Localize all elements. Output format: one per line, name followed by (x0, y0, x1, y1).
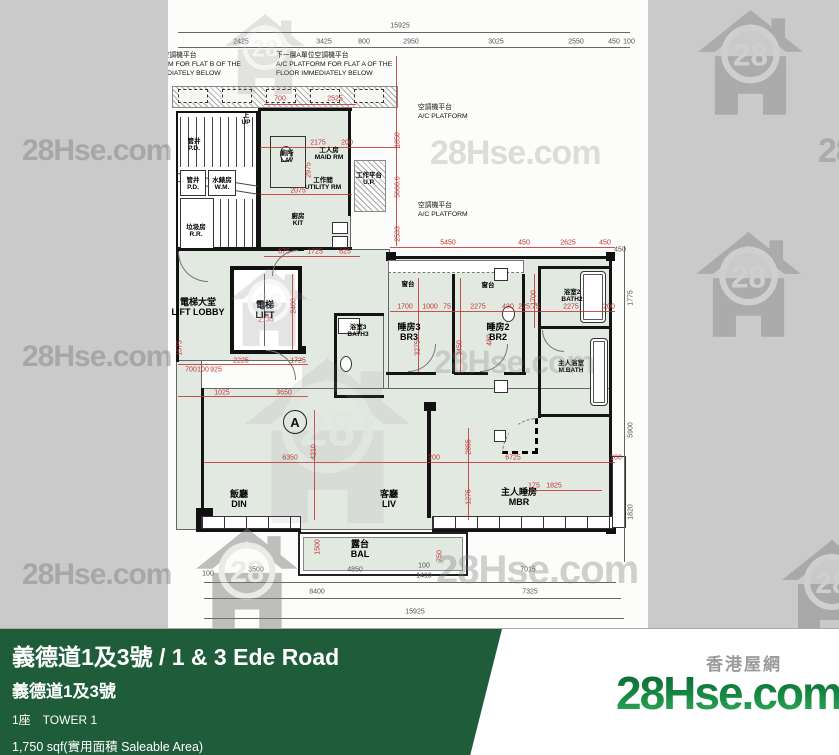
dimension-label: 1700 (531, 290, 538, 306)
ac-unit (222, 89, 252, 103)
wall (348, 108, 351, 216)
room-label-zh: 工作間 (305, 177, 341, 184)
dimension-label: 1775 (628, 290, 635, 306)
living-block-floor (202, 388, 612, 530)
column (298, 346, 306, 354)
dimension-label: 2625 (560, 240, 576, 247)
dimension-label: 1410 (416, 573, 432, 580)
dimension-line (204, 618, 624, 619)
room-label: 主人睡房MBR (501, 487, 537, 507)
dimension-label: 450 (614, 247, 626, 254)
room-label: 客廳LIV (380, 489, 398, 509)
dimension-label: 3450 (457, 340, 464, 356)
room-label: 浴室3BATH3 (347, 324, 368, 339)
dimension-line (204, 598, 621, 599)
room-label-zh: 客廳 (380, 489, 398, 499)
dimension-label: 100 (202, 571, 214, 578)
room-label: 主人浴室M.BATH (558, 360, 584, 375)
dimension-label: 15925 (390, 23, 409, 30)
dimension-label: 430 (502, 304, 514, 311)
dimension-line (390, 247, 615, 248)
dimension-label: 5666.6 (395, 176, 402, 197)
dimension-label: 1850 (395, 132, 402, 148)
room-label-zh: 廁所 (281, 150, 294, 157)
dimension-line (204, 582, 616, 583)
wall (334, 395, 384, 398)
dimension-label: 2225 (233, 358, 249, 365)
room-label: 水錶房W.M. (212, 177, 232, 192)
room-label-en: BATH2 (561, 296, 582, 303)
room-label: 管井P.D. (188, 138, 201, 153)
dimension-label: 1275 (466, 489, 473, 505)
dimension-label: 5900 (628, 422, 635, 438)
dimension-label: 7015 (520, 567, 536, 574)
room-label-zh: 上 (241, 112, 250, 119)
dimension-label: 2855 (466, 439, 473, 455)
annotation-line: 空調機平台 (418, 104, 468, 113)
dimension-line (178, 32, 630, 33)
dimension-label: 925 (210, 367, 222, 374)
room-label-zh: 工作平台 (356, 172, 382, 179)
property-subtitle: 義德道1及3號 (12, 677, 512, 702)
room-label-en: KIT (292, 220, 305, 227)
room-label-en: BR2 (486, 332, 509, 342)
dimension-label: 1725 (290, 358, 306, 365)
room-label-zh: 垃圾房 (186, 224, 206, 231)
dimension-label: 8400 (309, 589, 325, 596)
column (424, 402, 436, 411)
ac-unit (178, 89, 208, 103)
annotation-line: FLOOR IMMEDIATELY BELOW (276, 70, 392, 79)
watermark-text: 28Hse.com (818, 134, 839, 168)
room-label: 管井P.D. (187, 177, 200, 192)
room-label-zh: 管井 (188, 138, 201, 145)
room-label-zh: 浴室2 (561, 289, 582, 296)
bathtub (590, 338, 608, 406)
dimension-line (526, 490, 602, 491)
wall (386, 372, 436, 375)
dimension-label: 3025 (488, 39, 504, 46)
dimension-label: 2533 (395, 226, 402, 242)
tower-label: 1座 TOWER 1 (12, 711, 512, 728)
room-label-en: P.D. (187, 184, 200, 191)
room-label-en: LAV (281, 157, 294, 164)
room-label: 睡房2BR2 (486, 322, 509, 342)
dimension-label: 1575 (177, 340, 184, 356)
floor-plan: A 15925242534258002950302525504501007002… (168, 0, 648, 628)
room-label-zh: 睡房3 (397, 322, 420, 332)
side-strip-floor (176, 360, 202, 530)
room-label-en: R.R. (186, 231, 206, 238)
room-label-zh: 管井 (187, 177, 200, 184)
ac-platform-annotation: 空調機平台A/C PLATFORM (418, 202, 468, 220)
dimension-label: 2075 (290, 188, 306, 195)
dimension-label: 2550 (568, 39, 584, 46)
room-label: 電梯LIFT (256, 300, 275, 320)
dimension-label: 200 (603, 304, 615, 311)
dimension-label: 4210 (311, 444, 318, 460)
flat-label-text: A (290, 415, 299, 430)
kitchen-appliance (332, 222, 348, 234)
basin (494, 268, 508, 281)
room-label: 廁所LAV (281, 150, 294, 165)
dimension-line (204, 462, 615, 463)
annotation-line: 下一層A單位空調機平台 (276, 52, 392, 61)
room-label: 露台BAL (351, 539, 370, 559)
dimension-line (314, 410, 315, 520)
room-label-en: LIFT (256, 310, 275, 320)
dimension-label: 3500 (248, 567, 264, 574)
dimension-label: 100 (418, 563, 430, 570)
room-label-zh: 廚房 (292, 213, 305, 220)
room-label-en: MBR (501, 497, 537, 507)
room-label: 工作平台U.P. (356, 172, 382, 187)
room-label: 垃圾房R.R. (186, 224, 206, 239)
room-label-zh: 飯廳 (230, 489, 248, 499)
window-sill (201, 516, 301, 529)
dimension-label: 3275 (415, 340, 422, 356)
dimension-label: 2275 (470, 304, 486, 311)
wall (504, 372, 526, 375)
annotation-line: 空調機平台 (418, 202, 468, 211)
watermark-text: 28Hse.com (22, 342, 171, 372)
annotation-line: 下一層B單位空調機平台 (168, 52, 241, 61)
room-label-zh: 主人浴室 (558, 360, 584, 367)
dimension-label: 2400 (291, 298, 298, 314)
site-name-zh: 香港屋網 (706, 650, 782, 675)
dimension-label: 1700 (397, 304, 413, 311)
property-title: 義德道1及3號 / 1 & 3 Ede Road (12, 638, 512, 672)
wall (454, 372, 488, 375)
kitchen-appliance (332, 236, 348, 248)
wall (538, 266, 541, 418)
room-label-en: BR3 (397, 332, 420, 342)
dimension-label: 1820 (628, 504, 635, 520)
dimension-label: 3650 (276, 390, 292, 397)
room-label-zh: 窗台 (482, 282, 495, 289)
property-info-panel: 義德道1及3號 / 1 & 3 Ede Road 義德道1及3號 1座 TOWE… (0, 629, 512, 755)
dimension-label: 2975 (306, 162, 313, 178)
dimension-label: 450 (518, 240, 530, 247)
window-sill (432, 516, 613, 529)
ac-unit (354, 89, 384, 103)
dimension-line (264, 256, 360, 257)
dimension-label: 15925 (405, 609, 424, 616)
room-label: 工作間UTILITY RM (305, 177, 341, 192)
dimension-label: 7325 (522, 589, 538, 596)
dimension-label: 75 (443, 304, 451, 311)
room-label: 飯廳DIN (230, 489, 248, 509)
wall (258, 108, 261, 250)
room-label: 電梯大堂LIFT LOBBY (172, 297, 225, 317)
dimension-label: 1825 (546, 483, 562, 490)
dimension-line (178, 47, 630, 48)
ac-platform-annotation: 下一層A單位空調機平台A/C PLATFORM FOR FLAT A OF TH… (276, 52, 392, 78)
dimension-label: 100 (197, 367, 209, 374)
room-label-zh: 主人睡房 (501, 487, 537, 497)
ac-platform-annotation: 空調機平台A/C PLATFORM (418, 104, 468, 122)
dimension-label: 5450 (440, 240, 456, 247)
room-label-en: UP (241, 119, 250, 126)
toilet (340, 356, 352, 372)
watermark-logo (782, 540, 839, 628)
room-label-zh: 睡房2 (486, 322, 509, 332)
dimension-label: 2275 (563, 304, 579, 311)
wall (258, 108, 352, 111)
dimension-line (396, 56, 397, 246)
room-label-en: W.M. (212, 184, 232, 191)
dimension-label: 6725 (505, 455, 521, 462)
room-label: 睡房3BR3 (397, 322, 420, 342)
room-label: 廚房KIT (292, 213, 305, 228)
dimension-label: 675 (278, 249, 290, 256)
room-label-en: BAL (351, 549, 370, 559)
watermark-logo (696, 232, 801, 348)
dimension-label: 700 (185, 367, 197, 374)
room-label: 工人房MAID RM (315, 147, 344, 162)
wall (386, 256, 612, 259)
room-label-en: P.D. (188, 145, 201, 152)
dimension-line (390, 311, 615, 312)
annotation-line: FLOOR IMMEDIATELY BELOW (168, 70, 241, 79)
annotation-line: A/C PLATFORM (418, 113, 468, 122)
room-label-en: DIN (230, 499, 248, 509)
area-label: 1,750 sqf(實用面積 Saleable Area) (12, 736, 512, 755)
wall (452, 274, 455, 374)
room-label: 浴室2BATH2 (561, 289, 582, 304)
room-label-en: MAID RM (315, 154, 344, 161)
wall (334, 313, 337, 398)
screenshot-page: A 15925242534258002950302525504501007002… (0, 0, 839, 755)
room-label-zh: 浴室3 (347, 324, 368, 331)
dimension-label: 450 (599, 240, 611, 247)
dimension-label: 450 (608, 39, 620, 46)
dimension-line (264, 104, 356, 105)
dimension-label: 700 (274, 96, 286, 103)
wall (609, 256, 612, 418)
room-label-en: BATH3 (347, 331, 368, 338)
annotation-line: A/C PLATFORM FOR FLAT A OF THE (276, 61, 392, 70)
dimension-label: 6350 (282, 455, 298, 462)
dimension-label: 200 (428, 455, 440, 462)
dimension-label: 1000 (422, 304, 438, 311)
room-label-zh: 電梯 (256, 300, 275, 310)
ac-platform-annotation: 下一層B單位空調機平台A/C PLATFORM FOR FLAT B OF TH… (168, 52, 241, 78)
dimension-label: 1500 (315, 539, 322, 555)
wall (538, 414, 612, 417)
room-label: 窗台 (482, 282, 495, 289)
dimension-line (624, 246, 625, 562)
dimension-label: 200 (610, 455, 622, 462)
dimension-label: 2525 (327, 96, 343, 103)
room-label-en: M.BATH (558, 367, 584, 374)
dimension-label: 2950 (403, 39, 419, 46)
dimension-label: 625 (339, 249, 351, 256)
dimension-label: 2425 (233, 39, 249, 46)
dimension-label: 1725 (307, 249, 323, 256)
watermark-logo (698, 10, 803, 126)
wall (538, 326, 612, 329)
dimension-label: 2175 (310, 140, 326, 147)
room-label-zh: 露台 (351, 539, 370, 549)
wall (334, 313, 384, 316)
wall (522, 274, 525, 374)
dimension-line (460, 278, 461, 372)
room-label-zh: 水錶房 (212, 177, 232, 184)
annotation-line: A/C PLATFORM FOR FLAT B OF THE (168, 61, 241, 70)
room-label-en: LIV (380, 499, 398, 509)
annotation-line: A/C PLATFORM (418, 211, 468, 220)
dimension-label: 800 (358, 39, 370, 46)
brand-logo: 28Hse.com 香港屋網 (536, 648, 826, 748)
room-label-en: LIFT LOBBY (172, 307, 225, 317)
room-label-en: UTILITY RM (305, 184, 341, 191)
flat-label: A (283, 410, 307, 434)
basin (494, 380, 508, 393)
room-label-zh: 工人房 (315, 147, 344, 154)
dimension-label: 3425 (316, 39, 332, 46)
dimension-label: 750 (437, 550, 444, 562)
room-label-zh: 電梯大堂 (172, 297, 225, 307)
room-label: 窗台 (402, 281, 415, 288)
dimension-label: 4850 (347, 567, 363, 574)
dimension-label: 200 (341, 140, 353, 147)
dimension-label: 100 (623, 39, 635, 46)
room-label: 上UP (241, 112, 250, 127)
brand-house-icon (536, 652, 612, 740)
watermark-text: 28Hse.com (22, 560, 171, 590)
wall (538, 266, 612, 269)
room-label-zh: 窗台 (402, 281, 415, 288)
dimension-label: 1025 (214, 390, 230, 397)
room-label-en: U.P. (356, 179, 382, 186)
bathtub (580, 271, 606, 323)
watermark-text: 28Hse.com (22, 136, 171, 166)
